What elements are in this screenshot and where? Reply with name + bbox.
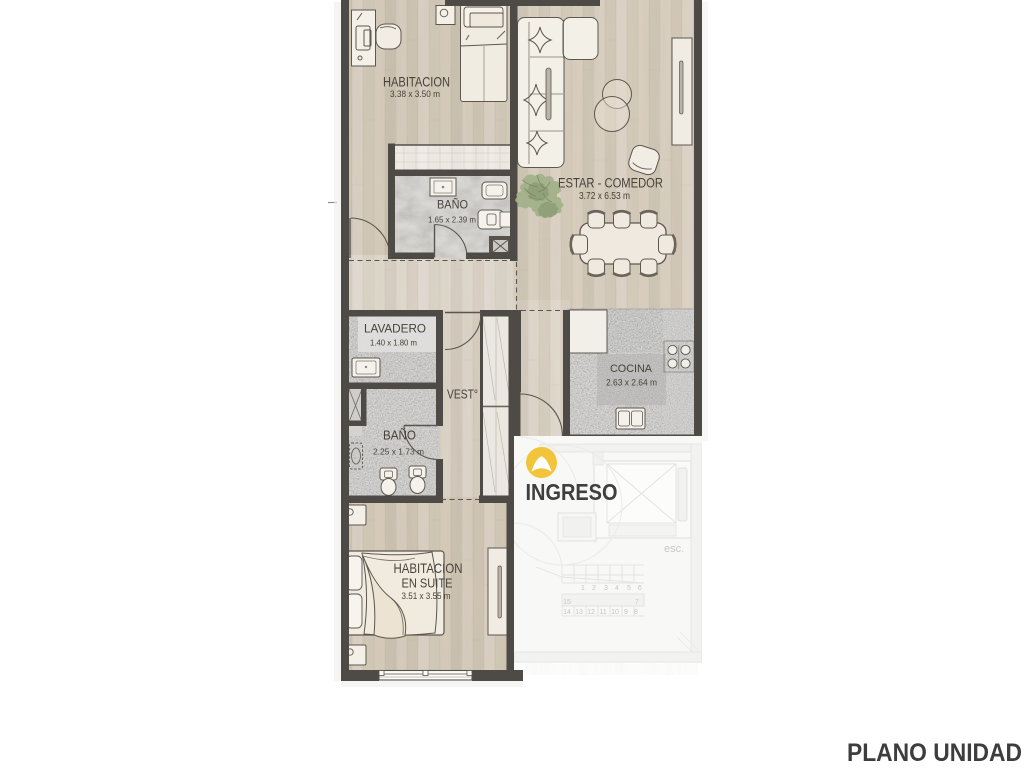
svg-text:13: 13 bbox=[575, 609, 583, 616]
svg-text:11: 11 bbox=[599, 609, 606, 616]
svg-text:6: 6 bbox=[638, 585, 642, 592]
svg-text:2: 2 bbox=[592, 585, 596, 592]
svg-text:ESTAR - COMEDOR: ESTAR - COMEDOR bbox=[558, 175, 663, 190]
svg-text:14: 14 bbox=[563, 609, 571, 616]
svg-text:5: 5 bbox=[627, 585, 631, 592]
svg-text:LAVADERO: LAVADERO bbox=[364, 322, 426, 336]
svg-text:12: 12 bbox=[587, 609, 595, 616]
svg-text:PLANO UNIDAD: PLANO UNIDAD bbox=[847, 739, 1022, 767]
svg-text:3.38 x 3.50 m: 3.38 x 3.50 m bbox=[390, 89, 440, 100]
svg-text:HABITACION: HABITACION bbox=[394, 560, 463, 576]
svg-text:BAÑO: BAÑO bbox=[383, 429, 416, 443]
svg-text:3.51 x 3.55 m: 3.51 x 3.55 m bbox=[402, 591, 451, 601]
svg-text:esc.: esc. bbox=[664, 543, 684, 555]
svg-text:4: 4 bbox=[615, 585, 619, 592]
svg-text:1.65 x 2.39 m: 1.65 x 2.39 m bbox=[428, 215, 476, 225]
svg-text:1.40 x 1.80 m: 1.40 x 1.80 m bbox=[370, 338, 417, 348]
svg-text:9: 9 bbox=[624, 609, 628, 616]
svg-text:1: 1 bbox=[581, 585, 585, 592]
svg-text:7: 7 bbox=[635, 599, 639, 606]
svg-text:2.63 x 2.64 m: 2.63 x 2.64 m bbox=[606, 378, 657, 388]
svg-text:INGRESO: INGRESO bbox=[526, 479, 618, 505]
svg-text:10: 10 bbox=[611, 609, 619, 616]
svg-text:COCINA: COCINA bbox=[610, 363, 653, 375]
svg-text:2.25 x 1.73 m: 2.25 x 1.73 m bbox=[373, 447, 424, 457]
svg-text:3: 3 bbox=[604, 585, 608, 592]
svg-text:8: 8 bbox=[634, 609, 638, 616]
svg-text:HABITACION: HABITACION bbox=[383, 73, 450, 89]
svg-text:VEST°: VEST° bbox=[447, 387, 478, 402]
svg-text:15: 15 bbox=[563, 599, 571, 606]
svg-text:3.72 x 6.53 m: 3.72 x 6.53 m bbox=[579, 191, 630, 202]
svg-text:EN SUITE: EN SUITE bbox=[402, 576, 453, 591]
svg-text:BAÑO: BAÑO bbox=[437, 198, 468, 212]
